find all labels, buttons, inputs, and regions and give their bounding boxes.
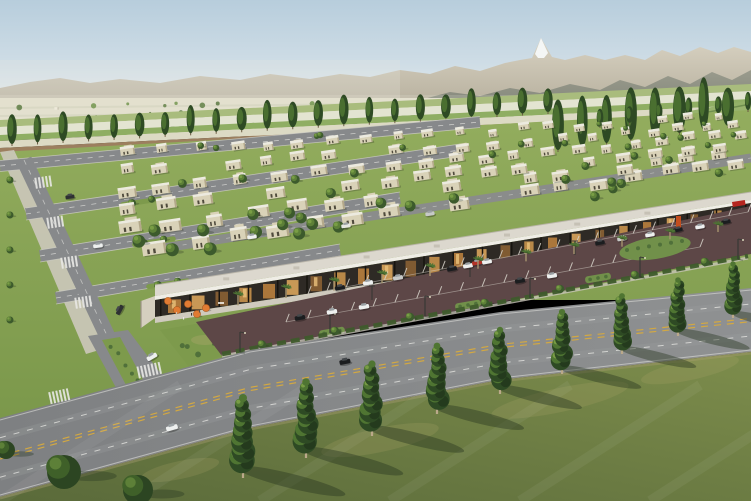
aerial-development-render	[0, 0, 751, 501]
storefront-sign-marks	[218, 302, 224, 304]
render-canvas	[0, 0, 751, 501]
